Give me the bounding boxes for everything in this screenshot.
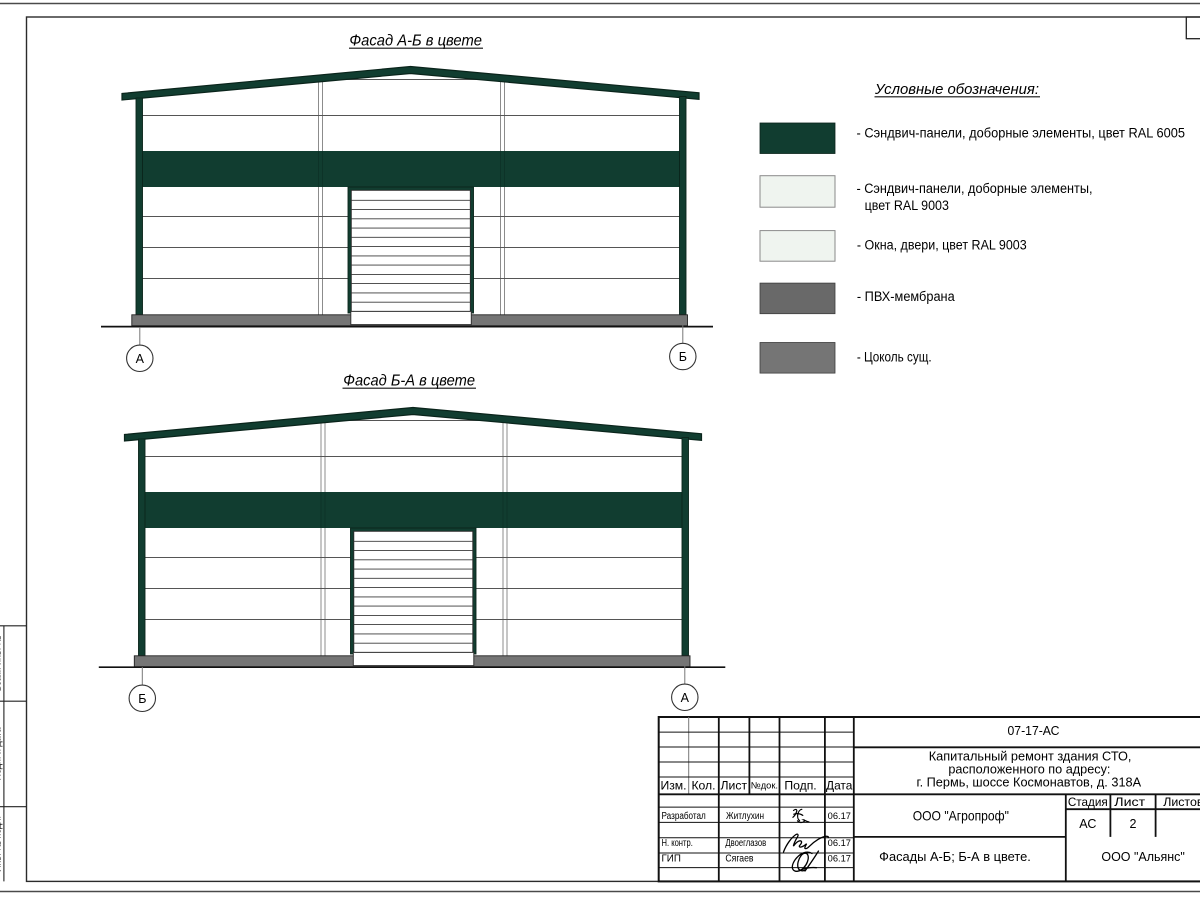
svg-text:А: А [681, 691, 690, 705]
svg-text:Инв. № подл.: Инв. № подл. [0, 816, 3, 872]
svg-text:06.17: 06.17 [828, 854, 851, 864]
svg-text:Взам. инв. №: Взам. инв. № [0, 635, 3, 691]
svg-text:Н. контр.: Н. контр. [662, 838, 693, 849]
svg-text:ООО "Агропроф": ООО "Агропроф" [913, 808, 1009, 824]
svg-text:АС: АС [1079, 817, 1096, 831]
svg-text:Фасад А-Б в цвете: Фасад А-Б в цвете [349, 33, 482, 50]
svg-text:цвет RAL 9003: цвет RAL 9003 [865, 198, 949, 213]
svg-text:- Сэндвич-панели, доборные эле: - Сэндвич-панели, доборные элементы, цве… [857, 125, 1186, 140]
svg-text:07-17-АС: 07-17-АС [1008, 723, 1060, 738]
svg-text:Кол.: Кол. [691, 779, 715, 793]
svg-text:Подп.: Подп. [784, 779, 816, 793]
svg-text:- ПВХ-мембрана: - ПВХ-мембрана [857, 289, 955, 304]
svg-text:06.17: 06.17 [828, 838, 851, 848]
svg-text:ООО "Альянс": ООО "Альянс" [1101, 849, 1185, 864]
svg-text:Б: Б [138, 692, 146, 706]
svg-text:- Сэндвич-панели, доборные эле: - Сэндвич-панели, доборные элементы, [857, 181, 1093, 196]
svg-text:Лист: Лист [721, 779, 748, 793]
svg-text:Разработал: Разработал [662, 811, 707, 822]
svg-text:Листов: Листов [1163, 795, 1200, 809]
svg-text:Дата: Дата [826, 779, 853, 793]
svg-text:А: А [136, 352, 145, 366]
svg-text:Двоеглазов: Двоеглазов [725, 838, 766, 849]
svg-text:2: 2 [1130, 817, 1137, 831]
svg-text:Фасад Б-А в цвете: Фасад Б-А в цвете [343, 373, 475, 390]
svg-text:№док.: №док. [751, 781, 778, 791]
svg-text:Условные обозначения:: Условные обозначения: [874, 81, 1039, 98]
svg-text:Изм.: Изм. [660, 779, 686, 793]
svg-text:ГИП: ГИП [662, 854, 681, 865]
svg-text:06.17: 06.17 [828, 811, 851, 821]
svg-text:Сягаев: Сягаев [725, 854, 753, 865]
svg-text:Житлухин: Житлухин [726, 811, 764, 822]
svg-text:- Окна, двери, цвет RAL 9003: - Окна, двери, цвет RAL 9003 [857, 238, 1027, 253]
svg-text:Фасады А-Б; Б-А в цвете.: Фасады А-Б; Б-А в цвете. [879, 849, 1031, 864]
svg-text:Стадия: Стадия [1068, 795, 1108, 809]
svg-text:г. Пермь, шоссе Космонавтов, д: г. Пермь, шоссе Космонавтов, д. 318А [917, 774, 1142, 789]
svg-text:Подп. и дата: Подп. и дата [0, 727, 3, 780]
svg-text:- Цоколь сущ.: - Цоколь сущ. [857, 350, 932, 365]
svg-text:Б: Б [679, 350, 687, 364]
svg-text:Лист: Лист [1114, 795, 1145, 809]
